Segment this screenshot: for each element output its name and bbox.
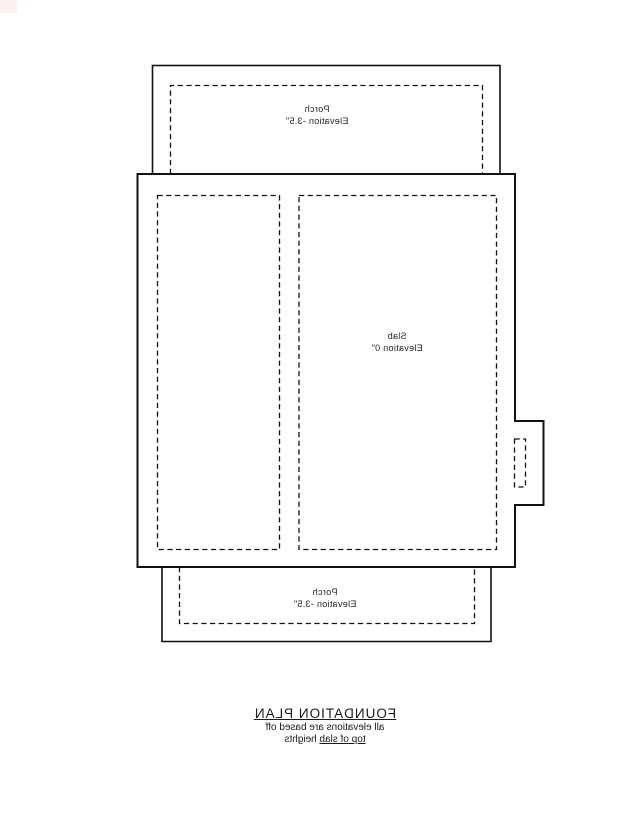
title-note-line1: all elevations are based off (165, 722, 485, 734)
title-note-line2: top of slab heights (165, 734, 485, 746)
top-porch-label: Porch Elevation -3.5" (217, 104, 417, 127)
bottom-porch-label: Porch Elevation -3.5" (225, 587, 425, 610)
foundation-plan-sheet: Porch Elevation -3.5" Slab Elevation 0" … (0, 0, 640, 824)
drawing-title: FOUNDATION PLAN (165, 706, 485, 722)
title-note-underlined-phrase: top of slab (319, 734, 365, 745)
bumpout-footing-dashed (515, 439, 526, 487)
title-note-rest: heights (284, 734, 319, 745)
slab-elevation: Elevation 0" (297, 343, 497, 355)
title-block: FOUNDATION PLAN all elevations are based… (165, 706, 485, 745)
foundation-outline (138, 174, 544, 567)
slab-name: Slab (297, 331, 497, 343)
top-porch-name: Porch (217, 104, 417, 116)
bottom-porch-elevation: Elevation -3.5" (225, 599, 425, 611)
top-porch-elevation: Elevation -3.5" (217, 116, 417, 128)
top-porch-footing-dashed (171, 86, 483, 175)
slab-footing-dashed (299, 196, 497, 550)
slab-label: Slab Elevation 0" (297, 331, 497, 354)
bottom-porch-name: Porch (225, 587, 425, 599)
left-footing-dashed (158, 196, 280, 550)
